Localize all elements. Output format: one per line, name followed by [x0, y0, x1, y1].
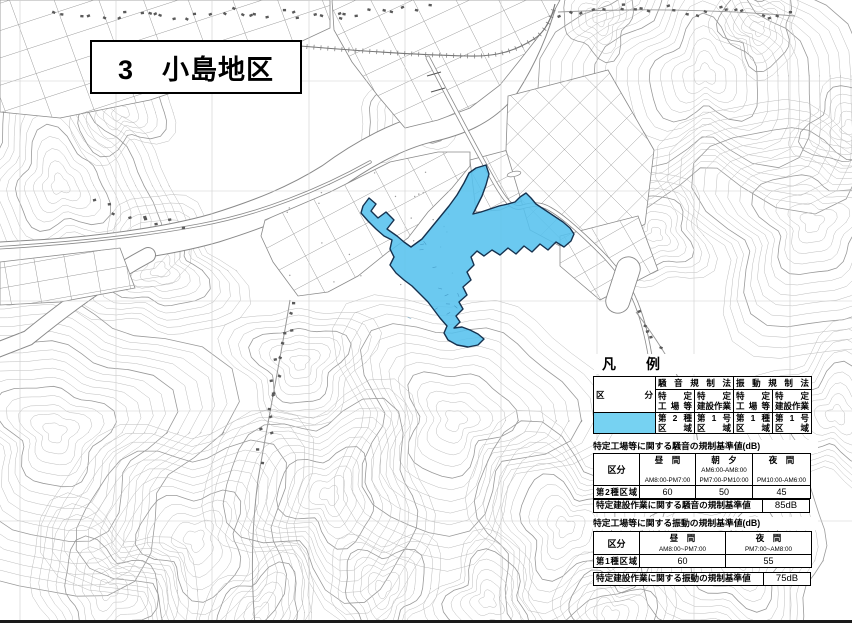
- legend-heading-box: 凡例: [594, 354, 706, 374]
- vibration-construction-bar: 特定建設作業に関する振動の規制基準値 75dB: [593, 572, 811, 586]
- noise-col-day: 昼 間 AM8:00-PM7:00: [640, 454, 696, 486]
- vibration-value-night: 55: [726, 555, 812, 568]
- legend-sub-factory-vibration: 特定 工場等: [734, 390, 773, 413]
- noise-table: 区分 昼 間 AM8:00-PM7:00 朝 夕 AM6:00-AM8:00 P…: [593, 453, 811, 499]
- noise-col-category: 区分: [594, 454, 640, 486]
- legend-zone-3: 第1号 区域: [773, 413, 812, 434]
- vibration-construction-label: 特定建設作業に関する振動の規制基準値: [594, 573, 764, 585]
- vibration-col-day: 昼 間 AM8:00~PM7:00: [640, 532, 726, 555]
- vibration-row-category: 第1種区域: [594, 555, 640, 568]
- noise-value-night: 45: [753, 486, 811, 499]
- legend-law-vibration: 振動規制法: [734, 377, 812, 390]
- legend-zone-swatch: [594, 413, 656, 434]
- noise-construction-bar: 特定建設作業に関する騒音の規制基準値 85dB: [593, 499, 810, 513]
- noise-row-category: 第2種区域: [594, 486, 640, 499]
- legend-zone-0: 第2種 区域: [656, 413, 695, 434]
- vibration-section-title: 特定工場等に関する振動の規制基準値(dB): [593, 517, 818, 530]
- district-title: 3 小島地区: [118, 48, 274, 87]
- legend-category-header: 区分: [594, 377, 656, 413]
- district-title-box: 3 小島地区: [90, 40, 302, 94]
- noise-col-night: 夜 間 PM10:00-AM6:00: [753, 454, 811, 486]
- legend-sub-construction-vibration: 特定 建設作業: [773, 390, 812, 413]
- noise-col-morning-evening: 朝 夕 AM6:00-AM8:00 PM7:00-PM10:00: [696, 454, 753, 486]
- legend-sub-construction-noise: 特定 建設作業: [695, 390, 734, 413]
- vibration-table: 区分 昼 間 AM8:00~PM7:00 夜 間 PM7:00~AM8:00 第…: [593, 531, 812, 568]
- legend-zone-2: 第1種 区域: [734, 413, 773, 434]
- noise-section-title: 特定工場等に関する騒音の規制基準値(dB): [593, 440, 818, 453]
- vibration-col-night: 夜 間 PM7:00~AM8:00: [726, 532, 812, 555]
- noise-construction-label: 特定建設作業に関する騒音の規制基準値: [594, 500, 763, 512]
- legend-law-noise: 騒音規制法: [656, 377, 734, 390]
- map-frame-bottom-border: [0, 620, 852, 623]
- noise-value-day: 60: [640, 486, 696, 499]
- noise-value-morning-evening: 50: [696, 486, 753, 499]
- legend-zone-1: 第1号 区域: [695, 413, 734, 434]
- noise-construction-value: 85dB: [763, 500, 809, 512]
- vibration-construction-value: 75dB: [764, 573, 810, 585]
- legend-heading: 凡例: [602, 354, 660, 374]
- zoning-map-page: 3 小島地区 凡例 区分 騒音規制法 振動規制法 特定 工場等 特定 建設作業 …: [0, 0, 852, 628]
- legend-sub-factory-noise: 特定 工場等: [656, 390, 695, 413]
- vibration-value-day: 60: [640, 555, 726, 568]
- vibration-col-category: 区分: [594, 532, 640, 555]
- legend-table: 区分 騒音規制法 振動規制法 特定 工場等 特定 建設作業 特定 工場等 特定 …: [593, 376, 812, 434]
